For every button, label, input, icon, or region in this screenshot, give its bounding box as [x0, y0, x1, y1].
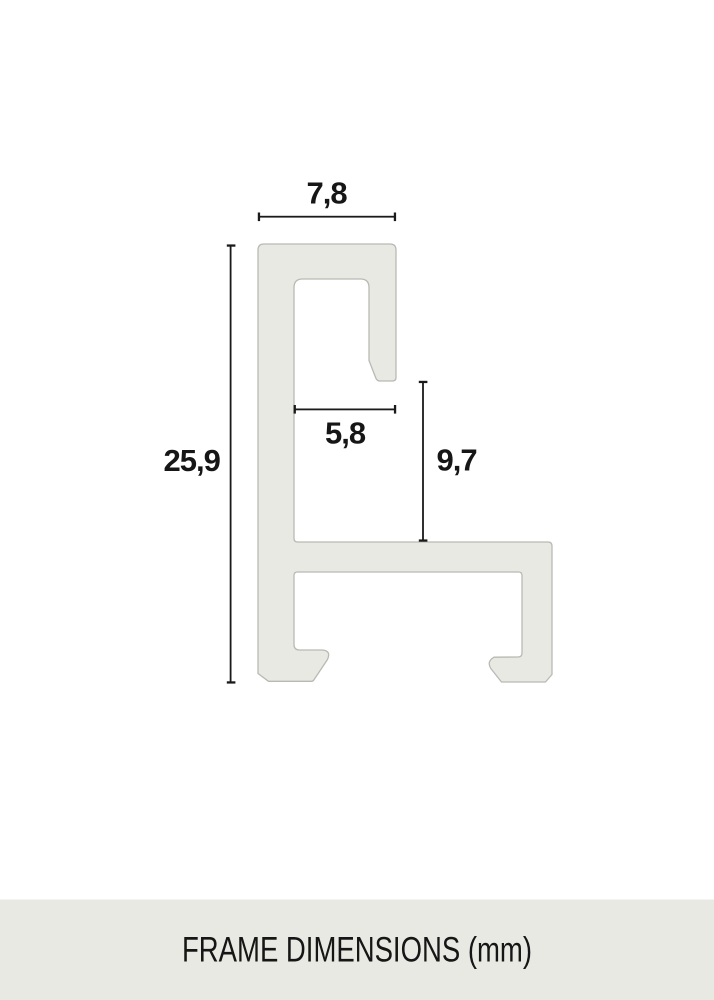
svg-text:7,8: 7,8 [307, 176, 348, 211]
svg-text:9,7: 9,7 [437, 443, 477, 478]
svg-text:5,8: 5,8 [325, 416, 366, 451]
svg-text:25,9: 25,9 [164, 443, 221, 478]
svg-text:FRAME DIMENSIONS (mm): FRAME DIMENSIONS (mm) [182, 931, 532, 970]
